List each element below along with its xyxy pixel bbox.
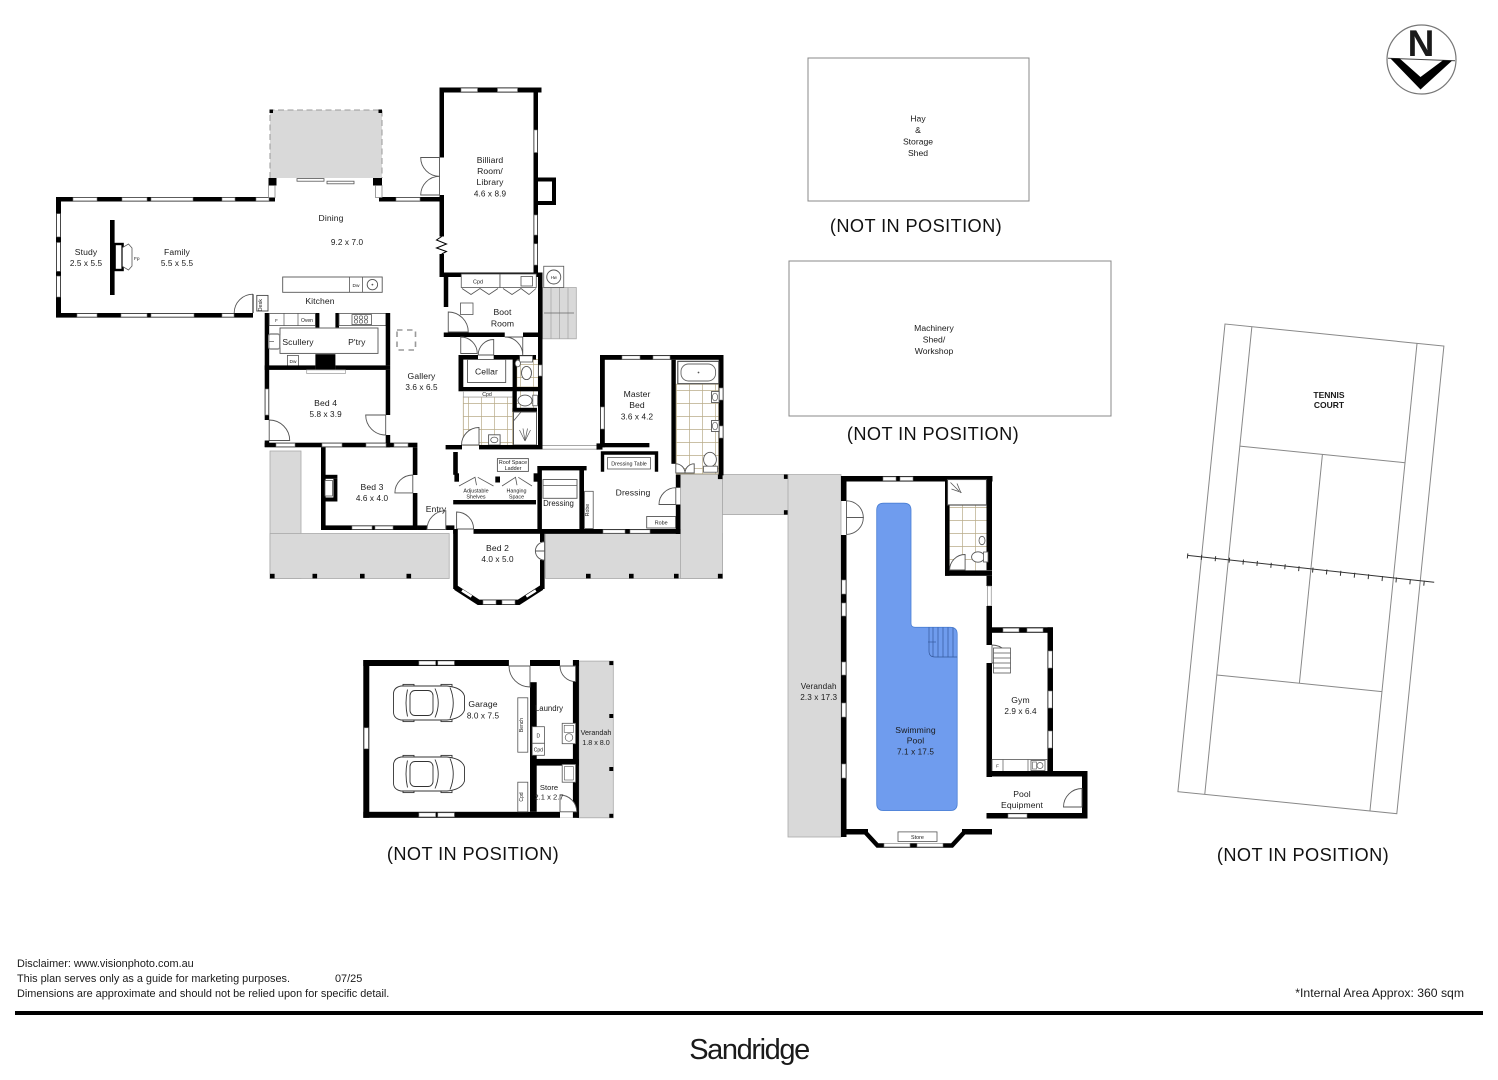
svg-text:Dressing Table: Dressing Table: [611, 462, 647, 468]
svg-text:Cpd: Cpd: [519, 792, 525, 801]
svg-text:Room: Room: [491, 319, 514, 329]
svg-text:Gym: Gym: [1011, 695, 1029, 705]
svg-text:Ladder: Ladder: [505, 466, 522, 472]
svg-text:Kitchen: Kitchen: [305, 296, 334, 306]
svg-text:TENNIS: TENNIS: [1313, 390, 1345, 400]
svg-text:Master: Master: [624, 389, 651, 399]
svg-text:Oven: Oven: [301, 318, 313, 324]
svg-text:Dining: Dining: [319, 213, 344, 223]
svg-text:Hay: Hay: [910, 114, 926, 124]
svg-text:Garage: Garage: [468, 699, 497, 709]
svg-text:4.6 x 4.0: 4.6 x 4.0: [356, 494, 389, 503]
svg-text:5.8 x 3.9: 5.8 x 3.9: [309, 410, 342, 419]
svg-text:Desk: Desk: [258, 299, 264, 312]
svg-text:Verandah: Verandah: [801, 682, 837, 691]
svg-text:8.0 x 7.5: 8.0 x 7.5: [467, 712, 500, 721]
svg-text:Hw: Hw: [551, 275, 558, 280]
svg-text:Shelves: Shelves: [466, 495, 485, 501]
svg-text:Entry: Entry: [426, 504, 447, 514]
svg-text:Adjustable: Adjustable: [463, 489, 488, 495]
svg-text:7.1 x 17.5: 7.1 x 17.5: [897, 748, 934, 757]
svg-text:9.2 x 7.0: 9.2 x 7.0: [331, 238, 364, 247]
svg-text:3.6 x 4.2: 3.6 x 4.2: [621, 413, 654, 422]
svg-text:Cpd: Cpd: [473, 280, 483, 286]
svg-text:D: D: [536, 734, 540, 740]
svg-text:2.3 x 17.3: 2.3 x 17.3: [800, 693, 837, 702]
svg-text:Bed 2: Bed 2: [486, 543, 509, 553]
svg-text:Bed 3: Bed 3: [361, 482, 384, 492]
svg-text:*Internal Area Approx: 360 sqm: *Internal Area Approx: 360 sqm: [1295, 986, 1464, 1000]
svg-text:Robe: Robe: [655, 521, 668, 527]
svg-text:Fp: Fp: [134, 256, 140, 262]
svg-text:Dressing: Dressing: [616, 488, 651, 498]
svg-text:&: &: [915, 125, 921, 135]
svg-text:5.5 x 5.5: 5.5 x 5.5: [161, 259, 194, 268]
svg-text:2.5 x 5.5: 2.5 x 5.5: [70, 259, 103, 268]
svg-text:07/25: 07/25: [335, 973, 362, 985]
svg-text:2.1 x 2.7: 2.1 x 2.7: [534, 793, 563, 802]
svg-text:Pool: Pool: [907, 736, 925, 746]
svg-text:3.6 x 6.5: 3.6 x 6.5: [405, 383, 438, 392]
svg-text:Workshop: Workshop: [915, 346, 954, 356]
svg-text:Pool: Pool: [1013, 789, 1031, 799]
svg-text:(NOT IN POSITION): (NOT IN POSITION): [830, 216, 1002, 236]
svg-text:Store: Store: [540, 783, 558, 792]
svg-text:Room/: Room/: [477, 166, 503, 176]
svg-text:Space: Space: [509, 495, 524, 501]
svg-text:Machinery: Machinery: [914, 323, 954, 333]
svg-text:Study: Study: [75, 247, 98, 257]
svg-text:Storage: Storage: [903, 137, 933, 147]
svg-text:Shed/: Shed/: [923, 335, 946, 345]
svg-text:Shed: Shed: [908, 148, 928, 158]
svg-text:Cpd: Cpd: [534, 748, 543, 754]
svg-text:4.6 x 8.9: 4.6 x 8.9: [474, 190, 507, 199]
svg-text:N: N: [1408, 23, 1435, 64]
svg-text:Laundry: Laundry: [535, 704, 563, 713]
svg-text:Gallery: Gallery: [408, 371, 437, 381]
svg-text:Dw: Dw: [353, 283, 360, 289]
svg-text:Library: Library: [477, 177, 505, 187]
svg-text:Bench: Bench: [519, 718, 525, 732]
svg-text:2.9 x 6.4: 2.9 x 6.4: [1004, 707, 1037, 716]
svg-text:Equipment: Equipment: [1001, 800, 1043, 810]
svg-text:P'try: P'try: [348, 337, 366, 347]
svg-text:1.8 x 8.0: 1.8 x 8.0: [582, 738, 610, 747]
svg-text:Verandah: Verandah: [581, 728, 612, 737]
svg-text:Cpd: Cpd: [482, 392, 492, 398]
svg-text:Sandridge: Sandridge: [689, 1034, 809, 1066]
svg-text:This plan serves only as a gui: This plan serves only as a guide for mar…: [17, 973, 290, 985]
svg-text:Billiard: Billiard: [477, 155, 504, 165]
svg-text:(NOT IN POSITION): (NOT IN POSITION): [387, 844, 559, 864]
svg-text:COURT: COURT: [1314, 400, 1345, 410]
svg-text:Swimming: Swimming: [895, 725, 936, 735]
svg-text:Dressing: Dressing: [543, 499, 574, 508]
svg-text:Bed 4: Bed 4: [314, 398, 337, 408]
svg-text:Scullery: Scullery: [282, 337, 314, 347]
svg-text:Dw: Dw: [290, 359, 297, 365]
svg-text:Bed: Bed: [629, 400, 645, 410]
svg-text:4.0 x 5.0: 4.0 x 5.0: [481, 555, 514, 564]
svg-text:(NOT IN POSITION): (NOT IN POSITION): [1217, 845, 1389, 865]
svg-text:Boot: Boot: [493, 307, 512, 317]
svg-text:Family: Family: [164, 247, 191, 257]
svg-text:Disclaimer: www.visionphoto.co: Disclaimer: www.visionphoto.com.au: [17, 958, 194, 970]
svg-text:(NOT IN POSITION): (NOT IN POSITION): [847, 424, 1019, 444]
svg-text:Store: Store: [911, 835, 924, 841]
svg-text:Robe: Robe: [585, 504, 591, 517]
svg-text:Cellar: Cellar: [475, 367, 498, 377]
svg-text:F: F: [996, 764, 999, 769]
svg-text:Hanging: Hanging: [506, 489, 526, 495]
svg-text:F: F: [275, 318, 278, 323]
svg-text:Dimensions are approximate and: Dimensions are approximate and should no…: [17, 988, 389, 1000]
